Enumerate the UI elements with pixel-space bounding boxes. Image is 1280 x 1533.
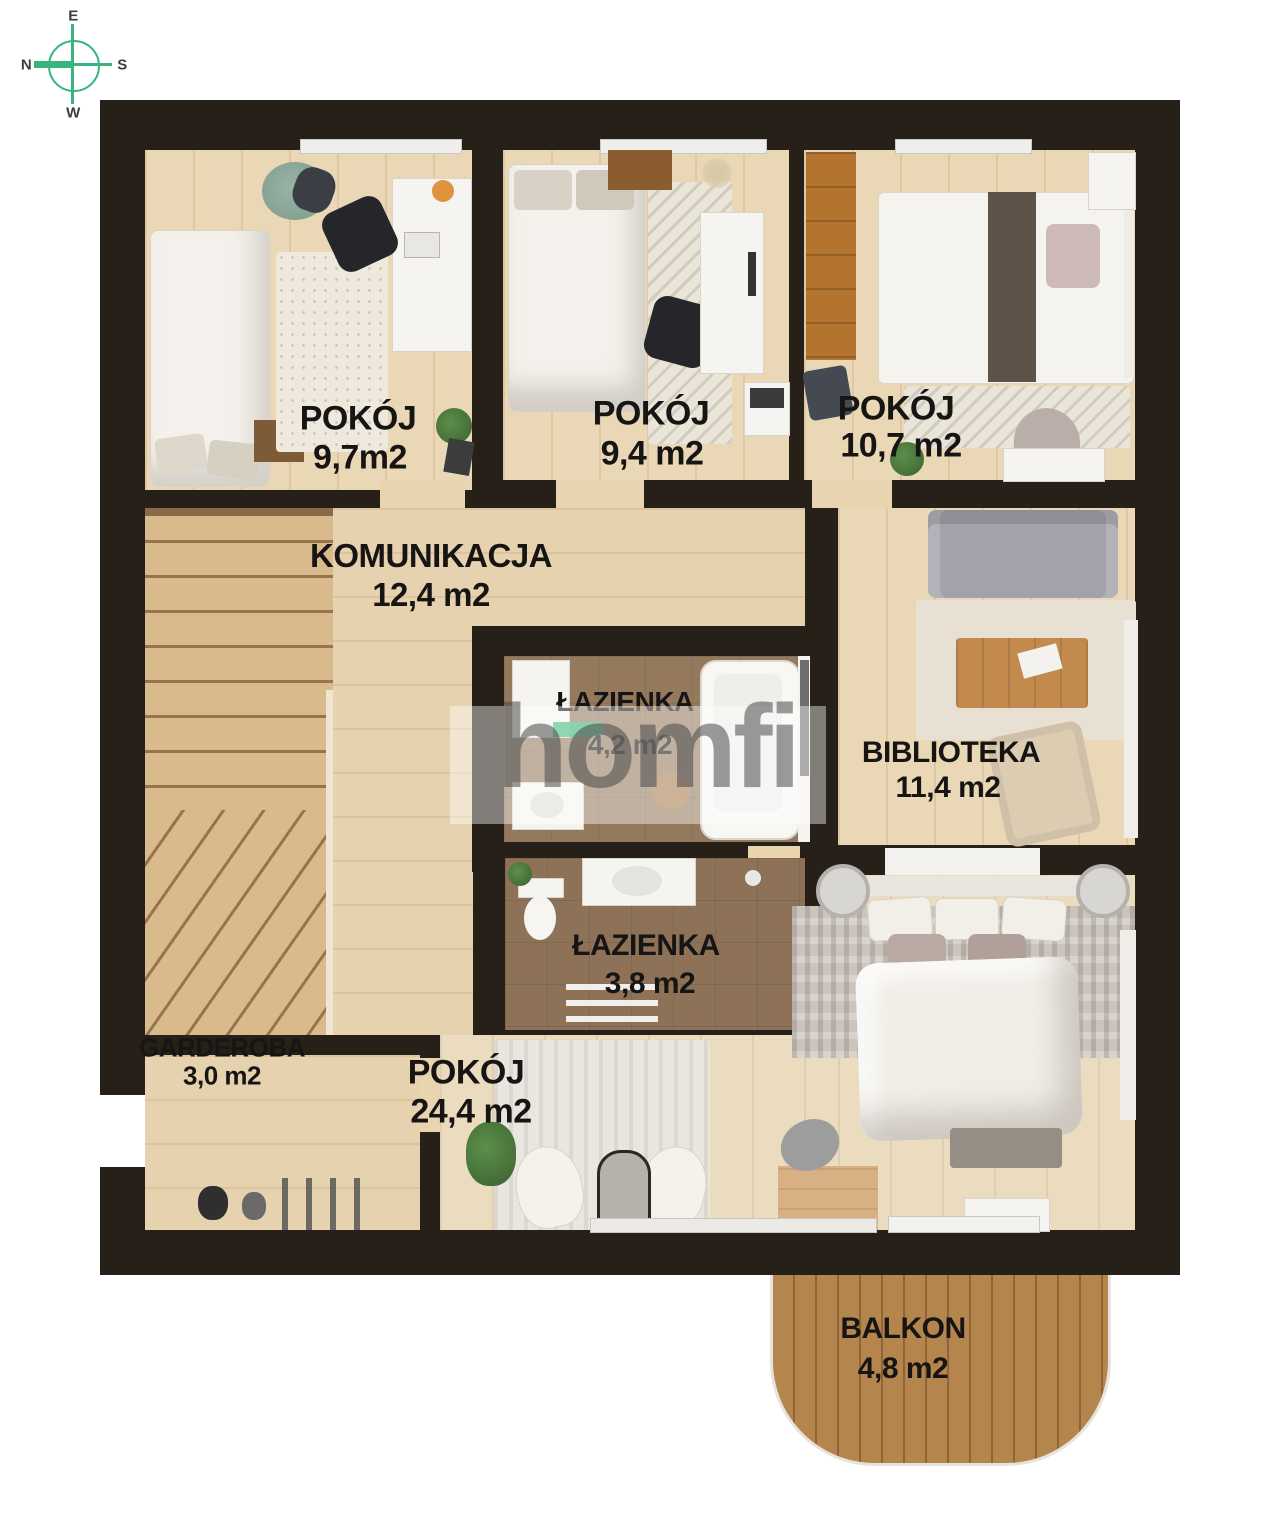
dumbbell-rack	[282, 1178, 378, 1230]
hall-area-label: 12,4 m2	[372, 576, 490, 614]
library-sofa	[928, 510, 1118, 598]
nightstand-lamp-left	[816, 864, 870, 918]
room1-pillow-left	[154, 433, 209, 476]
room2-name-label: POKÓJ	[593, 395, 710, 434]
room3-headboard	[1124, 196, 1134, 378]
bedroom-wardrobe-strip	[1120, 930, 1136, 1120]
bedroom-area-label: 24,4 m2	[410, 1093, 531, 1132]
bathroom2-door-gap	[748, 846, 800, 858]
compass-north-label: N	[21, 57, 31, 74]
bedroom-window	[590, 1218, 877, 1233]
room3-bed-runner	[988, 192, 1036, 382]
room2-door-gap	[556, 480, 644, 508]
room2-monitor	[748, 252, 756, 296]
balcony-door	[888, 1216, 1040, 1233]
staircase-handrail	[326, 690, 333, 1035]
wardrobe-room-area-label: 3,0 m2	[183, 1061, 261, 1092]
bed-headboard	[860, 876, 1078, 896]
room2-area-label: 9,4 m2	[601, 435, 704, 474]
toilet-bowl	[524, 896, 556, 940]
left-wall-notch	[100, 1095, 146, 1167]
room2-printer	[750, 388, 784, 408]
room1-door-gap	[380, 480, 465, 508]
room3-area-label: 10,7 m2	[840, 427, 961, 466]
library-area-label: 11,4 m2	[896, 771, 1001, 805]
room3-desk	[1003, 448, 1105, 482]
compass-east-label: E	[68, 8, 78, 25]
room3-wardrobe	[806, 152, 856, 360]
bed-bench	[950, 1128, 1062, 1168]
compass-north-thick-arm	[34, 61, 72, 68]
staircase-top-edge	[145, 508, 333, 516]
bedroom-plant	[466, 1122, 516, 1186]
compass-west-label: W	[66, 105, 80, 122]
room3-nightstand	[1088, 152, 1136, 210]
bathroom2-name-label: ŁAZIENKA	[572, 929, 720, 963]
staircase-winder-treads	[145, 810, 333, 1035]
compass-south-label: S	[117, 57, 127, 74]
room1-area-label: 9,7m2	[313, 439, 407, 478]
room3-window	[895, 139, 1032, 154]
kettlebell-large	[198, 1186, 228, 1220]
staircase-upper-treads	[145, 508, 333, 810]
room1-name-label: POKÓJ	[300, 400, 417, 439]
room1-desk	[392, 178, 472, 352]
library-name-label: BIBLIOTEKA	[862, 736, 1040, 770]
room3-name-label: POKÓJ	[838, 390, 955, 429]
bathroom2-sink-basin	[612, 866, 662, 896]
balcony-area-label: 4,8 m2	[858, 1352, 948, 1386]
watermark-brand-text: homfi	[496, 688, 797, 806]
room1-fruit-bowl	[432, 180, 454, 202]
bedroom-name-label: POKÓJ	[408, 1054, 525, 1093]
hall-name-label: KOMUNIKACJA	[310, 537, 552, 575]
shower-head	[745, 870, 761, 886]
room2-pillow-left	[514, 170, 572, 210]
room2-shelf	[608, 150, 672, 190]
nightstand-lamp-right	[1076, 864, 1130, 918]
bed-duvet	[855, 956, 1083, 1142]
balcony-name-label: BALKON	[840, 1312, 965, 1346]
room1-window	[300, 139, 462, 154]
bedroom-sliding-door	[885, 848, 1040, 875]
room3-door-gap	[812, 480, 892, 508]
room3-pillow	[1046, 224, 1100, 288]
kettlebell-small	[242, 1192, 266, 1220]
room1-laptop	[404, 232, 440, 258]
library-bookshelf	[1124, 620, 1138, 838]
wardrobe-room-name-label: GARDEROBA	[139, 1033, 305, 1064]
room2-pendant-lamp	[702, 158, 732, 188]
floorplan-canvas: E S W N	[0, 0, 1280, 1533]
bathroom2-area-label: 3,8 m2	[605, 967, 695, 1001]
bathroom2-plant	[508, 862, 532, 886]
